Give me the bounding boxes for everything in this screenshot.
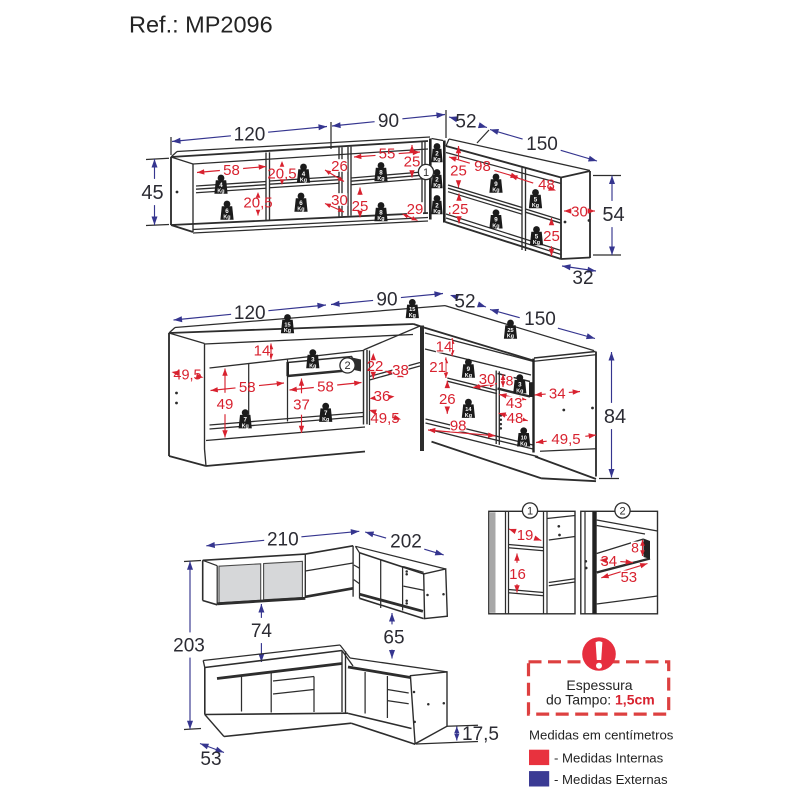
svg-text:25: 25: [543, 228, 560, 245]
svg-text:30: 30: [479, 371, 496, 388]
svg-text:26: 26: [331, 158, 348, 175]
svg-text:2: 2: [344, 360, 350, 372]
svg-text:30: 30: [331, 192, 348, 209]
svg-text:Kg: Kg: [520, 442, 527, 448]
svg-text:Kg: Kg: [433, 209, 440, 215]
svg-text:21: 21: [429, 359, 446, 376]
svg-text:58: 58: [239, 379, 256, 396]
svg-text:Kg: Kg: [492, 224, 499, 230]
svg-text:Kg: Kg: [322, 417, 329, 423]
svg-text:34: 34: [600, 553, 617, 570]
svg-text:Kg: Kg: [377, 176, 384, 182]
svg-text:2: 2: [619, 505, 625, 517]
svg-text:Kg: Kg: [217, 189, 224, 195]
svg-text:25: 25: [352, 198, 369, 215]
svg-text:58: 58: [223, 162, 240, 179]
svg-text:49,5: 49,5: [370, 410, 399, 427]
svg-text:37: 37: [293, 396, 310, 413]
svg-text:20,5: 20,5: [267, 165, 296, 182]
svg-text:do Tampo: 1,5cm: do Tampo: 1,5cm: [546, 692, 655, 708]
svg-text:Kg: Kg: [377, 216, 384, 222]
svg-text:29: 29: [407, 201, 424, 218]
svg-text:58: 58: [317, 379, 334, 396]
svg-text:202: 202: [390, 532, 422, 553]
svg-text:1: 1: [423, 167, 429, 179]
svg-text:90: 90: [378, 111, 399, 132]
svg-text:150: 150: [524, 309, 556, 330]
svg-text:120: 120: [234, 303, 266, 324]
svg-text:Medidas em centímetros: Medidas em centímetros: [529, 728, 674, 743]
svg-text:Kg: Kg: [433, 157, 440, 163]
svg-text:17,5: 17,5: [462, 724, 499, 745]
svg-text::25: :25: [448, 201, 469, 218]
svg-text:65: 65: [383, 628, 404, 649]
svg-text:Kg: Kg: [409, 313, 416, 319]
svg-text:52: 52: [454, 292, 475, 313]
svg-text:Kg: Kg: [516, 388, 523, 394]
svg-text:Kg: Kg: [507, 334, 514, 340]
svg-text:Kg: Kg: [300, 178, 307, 184]
svg-text:55: 55: [379, 145, 396, 162]
svg-text:19: 19: [517, 527, 534, 544]
svg-text:22: 22: [367, 358, 384, 375]
svg-text:Kg: Kg: [465, 373, 472, 379]
svg-text:16: 16: [509, 566, 526, 583]
svg-text:1: 1: [527, 505, 533, 517]
svg-text:74: 74: [251, 621, 273, 642]
svg-text:8: 8: [506, 373, 514, 389]
svg-text:49,5: 49,5: [551, 431, 580, 448]
svg-text:49,5: 49,5: [173, 368, 201, 384]
svg-text:53: 53: [620, 569, 637, 586]
svg-text:48: 48: [507, 410, 524, 427]
svg-text:Kg: Kg: [309, 363, 316, 369]
svg-text:- Medidas Internas: - Medidas Internas: [554, 751, 664, 766]
svg-text:98: 98: [474, 158, 491, 175]
svg-text:30: 30: [571, 203, 588, 220]
svg-text:52: 52: [455, 112, 476, 133]
svg-text:25: 25: [450, 162, 467, 179]
svg-text:36: 36: [374, 388, 391, 405]
svg-text:53: 53: [200, 749, 221, 770]
svg-text:26: 26: [439, 391, 456, 408]
svg-text:Kg: Kg: [533, 240, 540, 246]
svg-text:Kg: Kg: [492, 188, 499, 194]
svg-text:210: 210: [267, 529, 299, 550]
svg-text:38: 38: [392, 362, 409, 379]
svg-text:49: 49: [217, 396, 234, 413]
svg-text:8: 8: [631, 540, 639, 556]
svg-text:98: 98: [450, 418, 467, 435]
svg-text:14: 14: [254, 342, 271, 359]
svg-text:84: 84: [604, 406, 626, 428]
svg-text:25: 25: [404, 153, 421, 170]
svg-text:20,5: 20,5: [243, 194, 272, 211]
svg-text:45: 45: [141, 182, 163, 204]
svg-text:90: 90: [376, 290, 397, 311]
svg-text:Ref.: MP2096: Ref.: MP2096: [129, 12, 273, 38]
svg-text:150: 150: [526, 134, 558, 155]
svg-text:Kg: Kg: [242, 423, 249, 429]
svg-text:Kg: Kg: [433, 183, 440, 189]
svg-text:54: 54: [602, 204, 624, 226]
svg-text:120: 120: [234, 125, 266, 146]
svg-text:Kg: Kg: [297, 207, 304, 213]
svg-text:Kg: Kg: [223, 215, 230, 221]
svg-text:14: 14: [436, 339, 453, 356]
svg-text:32: 32: [572, 268, 593, 289]
svg-text:Kg: Kg: [532, 203, 539, 209]
svg-text:- Medidas Externas: - Medidas Externas: [554, 772, 668, 787]
svg-text:Kg: Kg: [284, 328, 291, 334]
svg-text:203: 203: [173, 636, 205, 657]
svg-text:34: 34: [549, 386, 566, 403]
svg-text:48: 48: [538, 176, 555, 193]
